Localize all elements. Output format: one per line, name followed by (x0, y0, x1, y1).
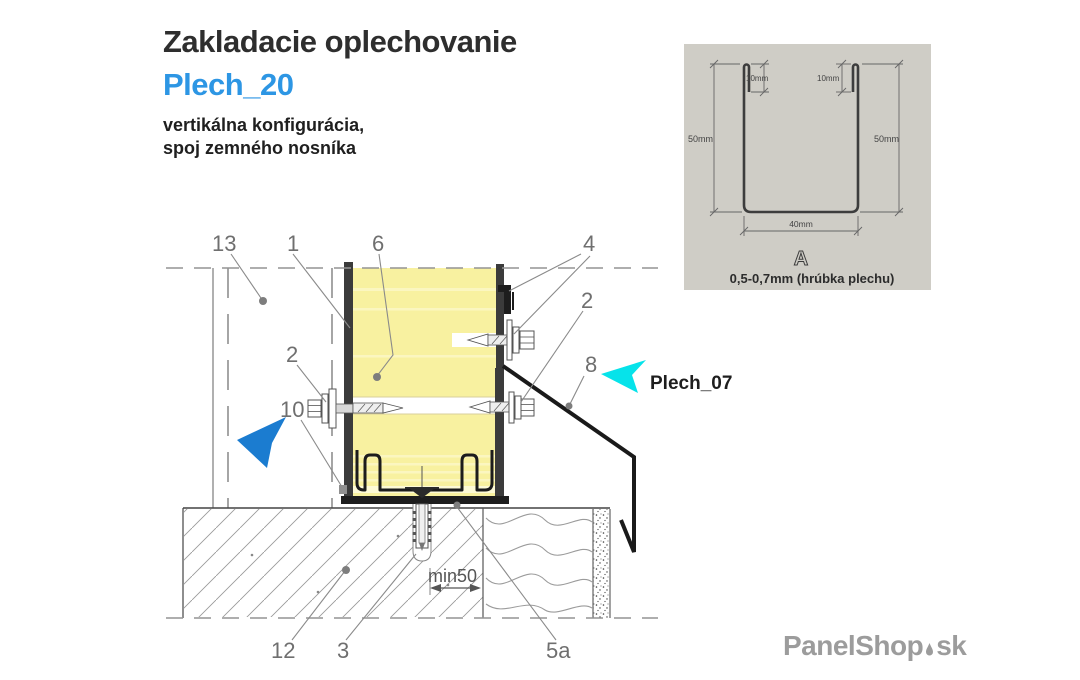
panel-right-face-upper (496, 264, 504, 368)
callout-6: 6 (372, 231, 384, 256)
callout-1: 1 (287, 231, 299, 256)
callout-12: 12 (271, 638, 295, 663)
callout-8: 8 (585, 352, 597, 377)
insulation (486, 514, 592, 612)
concrete-base (183, 508, 610, 618)
panel-left-face (344, 262, 353, 502)
callout-2-right: 2 (581, 288, 593, 313)
callout-13: 13 (212, 231, 236, 256)
panelshop-watermark: PanelShop sk (783, 630, 966, 662)
plaster-strip (593, 509, 610, 618)
cyan-pointer-arrow-icon (601, 360, 646, 393)
panel-right-face-lower (495, 368, 504, 502)
callout-3: 3 (337, 638, 349, 663)
flashing-product-label: Plech_07 (650, 373, 732, 394)
min50-label: min50 (428, 566, 477, 586)
blue-pointer-arrow-icon (237, 417, 286, 468)
callout-2-left: 2 (286, 342, 298, 367)
flame-separator-icon (925, 641, 934, 657)
sandwich-panel (344, 262, 504, 502)
watermark-brand: PanelShop (783, 630, 923, 662)
wall-outline (213, 268, 332, 508)
callout-4: 4 (583, 231, 595, 256)
section-drawing: min50 13 1 6 4 2 2 8 10 12 3 5a Plech_07 (0, 0, 1080, 680)
callout-5a: 5a (546, 638, 571, 663)
watermark-tld: sk (936, 630, 966, 662)
